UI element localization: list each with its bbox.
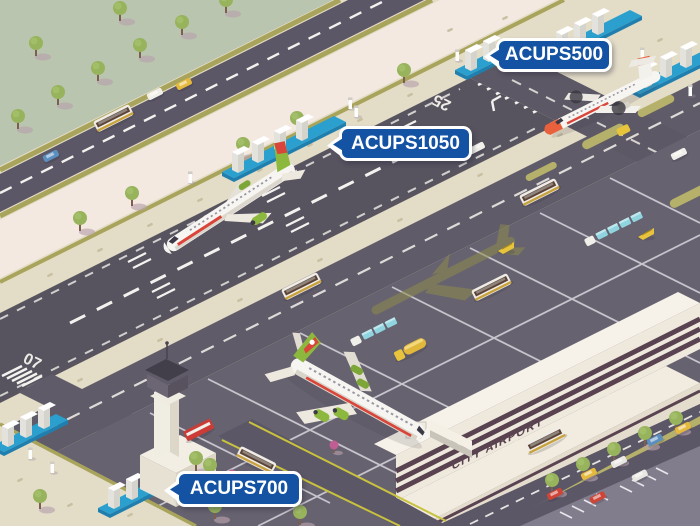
- callout-acups500-label: ACUPS500: [505, 44, 603, 66]
- callout-acups500: ACUPS500: [496, 38, 612, 72]
- callout-acups700-label: ACUPS700: [190, 478, 288, 500]
- airport-map: 07 25: [0, 0, 700, 526]
- callout-acups1050: ACUPS1050: [339, 126, 472, 161]
- airport-illustration: 07 25: [0, 0, 700, 526]
- callout-acups1050-label: ACUPS1050: [351, 133, 460, 155]
- callout-acups700: ACUPS700: [176, 471, 302, 507]
